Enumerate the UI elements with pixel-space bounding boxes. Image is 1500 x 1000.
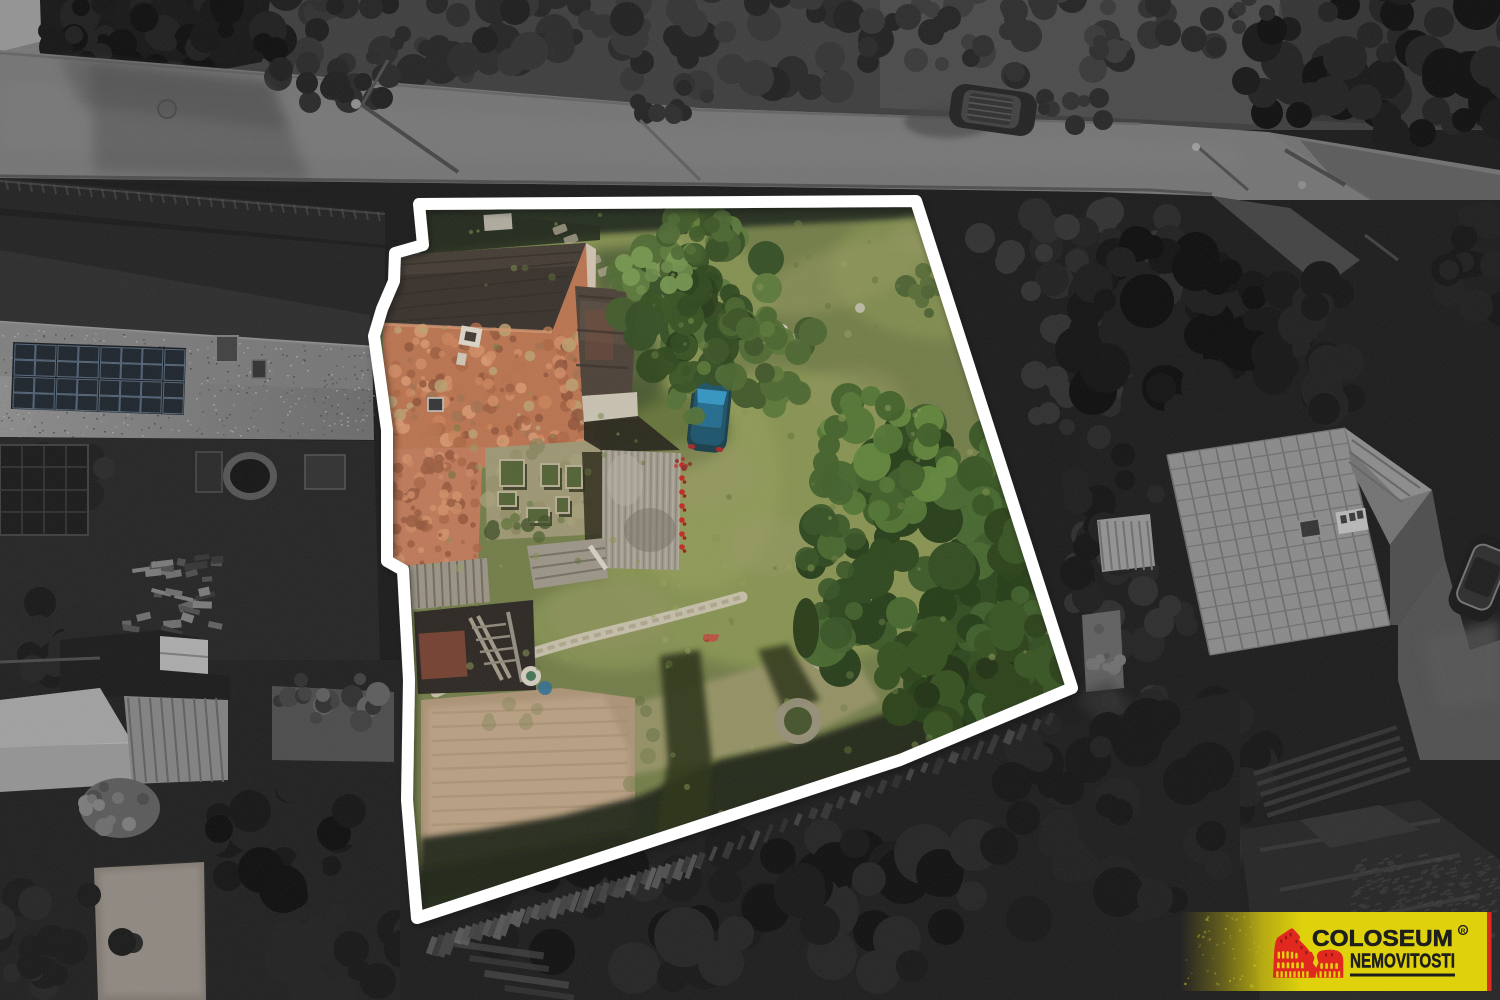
svg-text:COLOSEUM: COLOSEUM (1312, 925, 1453, 951)
svg-text:NEMOVITOSTI: NEMOVITOSTI (1350, 951, 1455, 973)
svg-text:R: R (1461, 928, 1466, 935)
